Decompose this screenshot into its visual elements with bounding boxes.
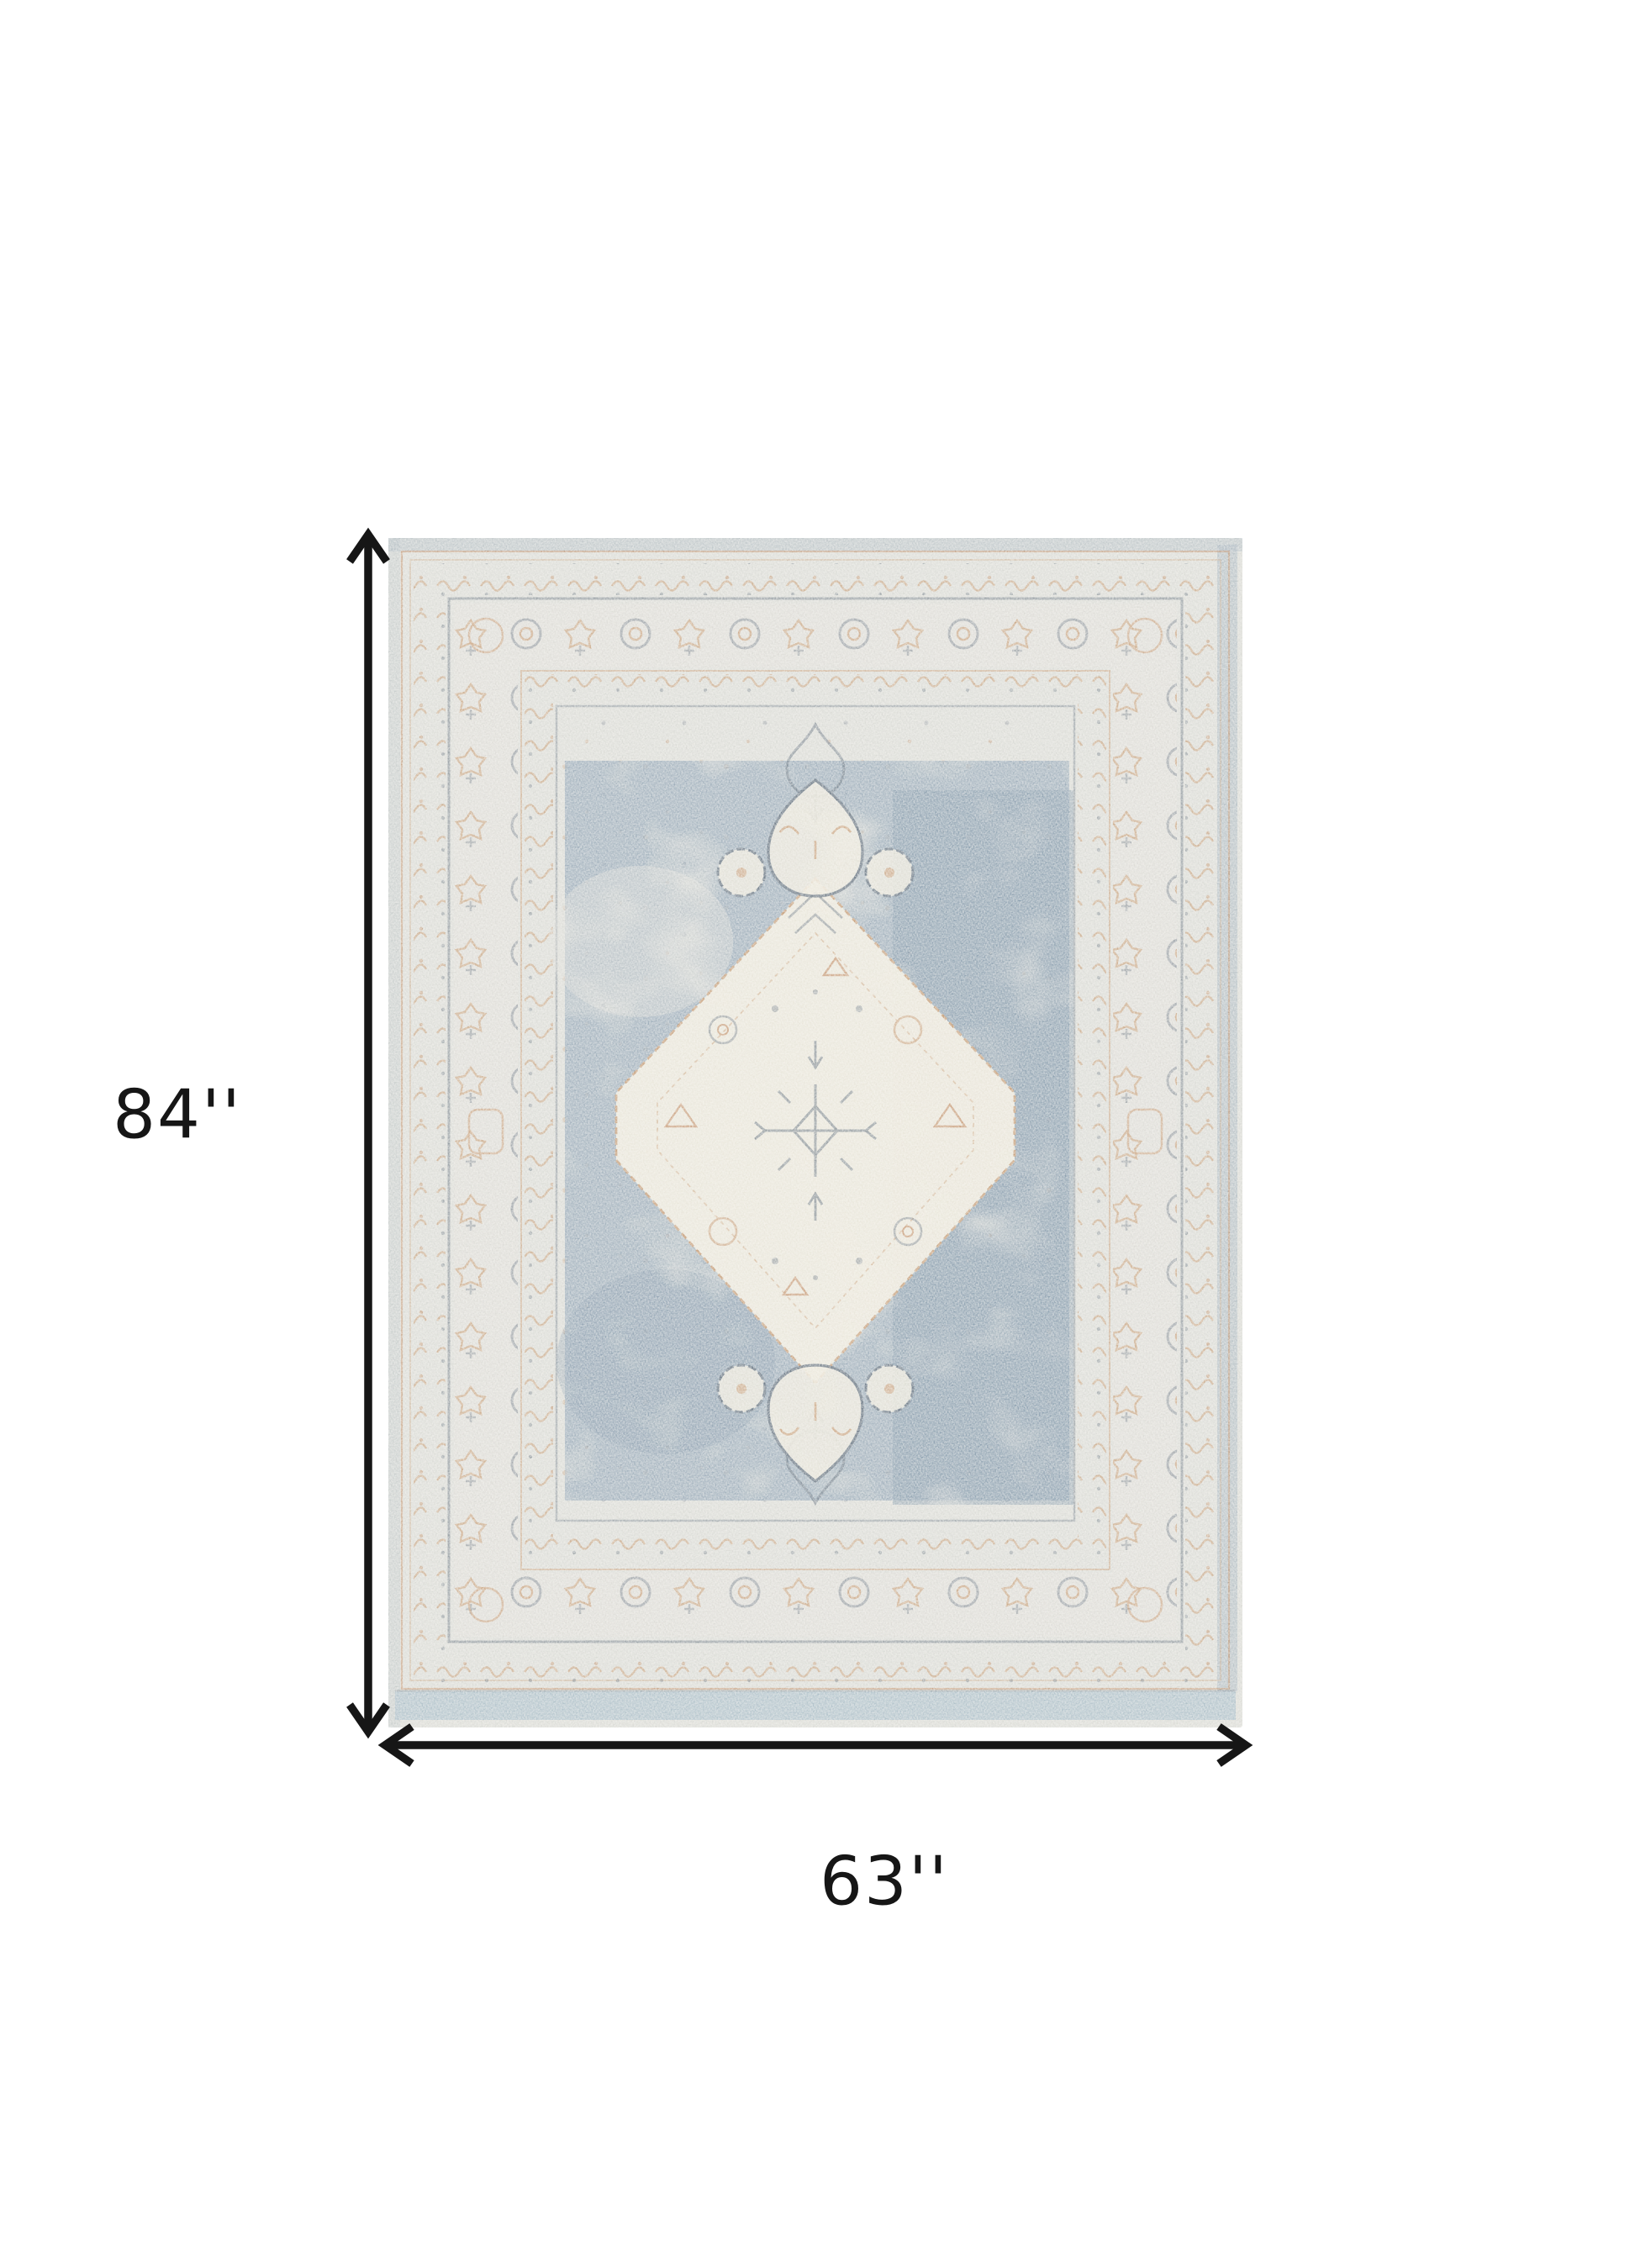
height-dimension-arrow (338, 526, 398, 1742)
rug-graphic (388, 538, 1242, 1727)
height-label: 84'' (113, 1076, 242, 1154)
rug-distress-texture (388, 538, 1242, 1727)
width-dimension-arrow (375, 1715, 1256, 1775)
rug-image (388, 538, 1242, 1727)
width-label: 63'' (820, 1843, 949, 1921)
product-image-canvas: 84'' 63'' (0, 0, 1635, 2268)
